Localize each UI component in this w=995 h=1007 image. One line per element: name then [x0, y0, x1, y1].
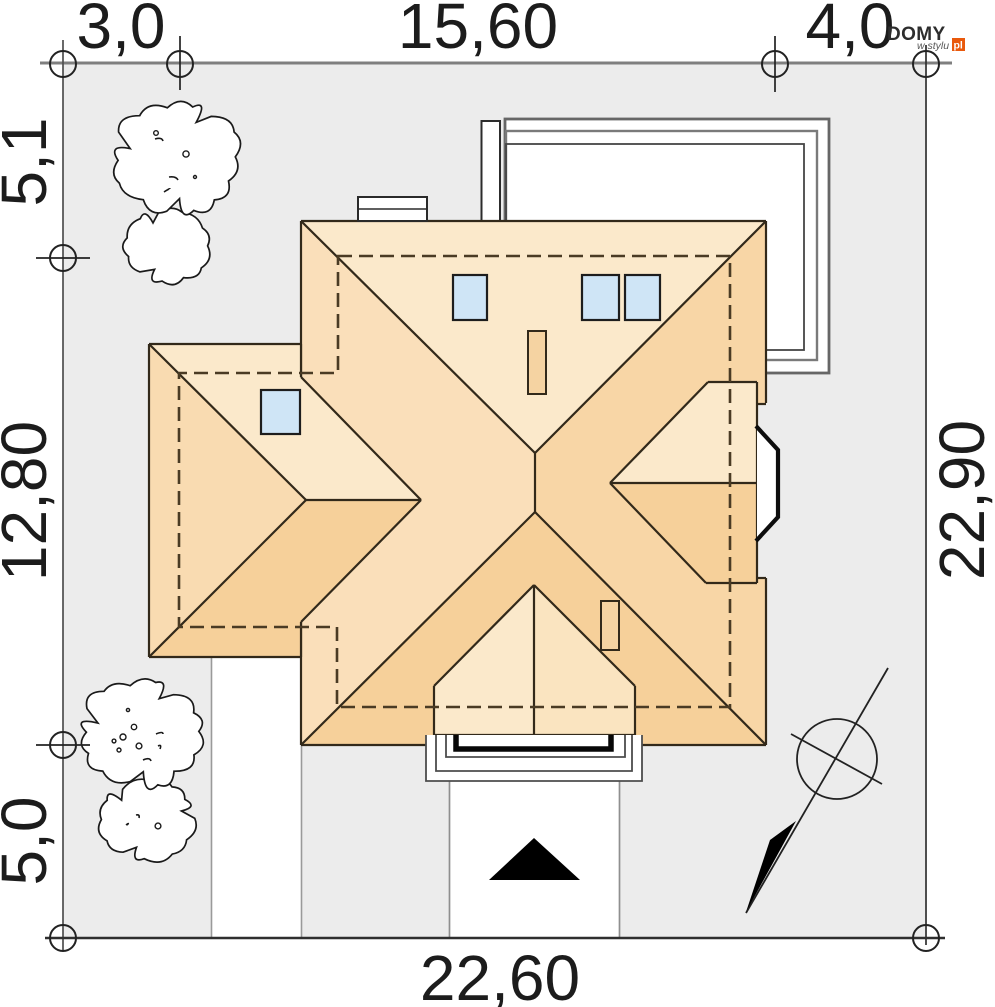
svg-text:pl: pl [954, 40, 963, 52]
svg-text:5,1: 5,1 [0, 118, 60, 207]
svg-text:3,0: 3,0 [77, 0, 166, 62]
svg-text:15,60: 15,60 [398, 0, 558, 62]
svg-text:w stylu: w stylu [917, 40, 949, 52]
svg-text:22,90: 22,90 [926, 420, 995, 580]
svg-text:4,0: 4,0 [806, 0, 895, 62]
svg-text:22,60: 22,60 [420, 942, 580, 1007]
svg-text:12,80: 12,80 [0, 421, 60, 581]
svg-text:5,0: 5,0 [0, 797, 60, 886]
